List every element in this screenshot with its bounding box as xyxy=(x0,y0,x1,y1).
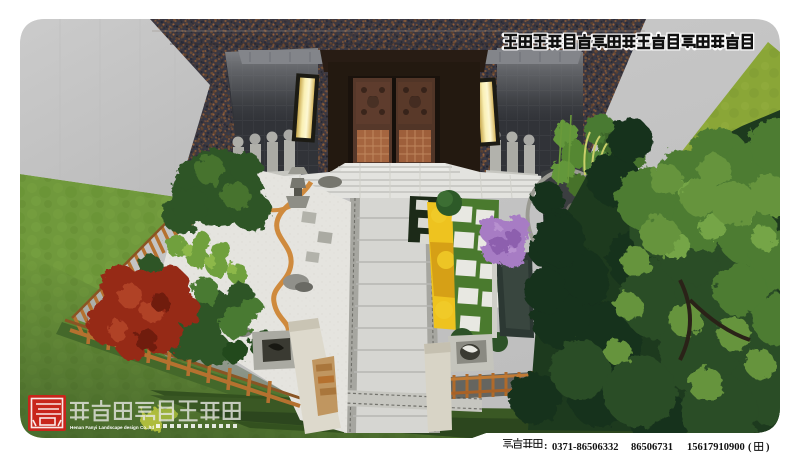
svg-text:Henan Fanyi Landscape design C: Henan Fanyi Landscape design Co.,ltd xyxy=(70,425,154,430)
svg-text:0371-86506332: 0371-86506332 xyxy=(552,442,619,453)
svg-text:86506731: 86506731 xyxy=(631,442,673,453)
svg-text:(: ( xyxy=(748,442,752,453)
svg-text:15617910900: 15617910900 xyxy=(687,442,745,453)
svg-text::: : xyxy=(544,441,548,452)
svg-text:): ) xyxy=(766,442,770,453)
